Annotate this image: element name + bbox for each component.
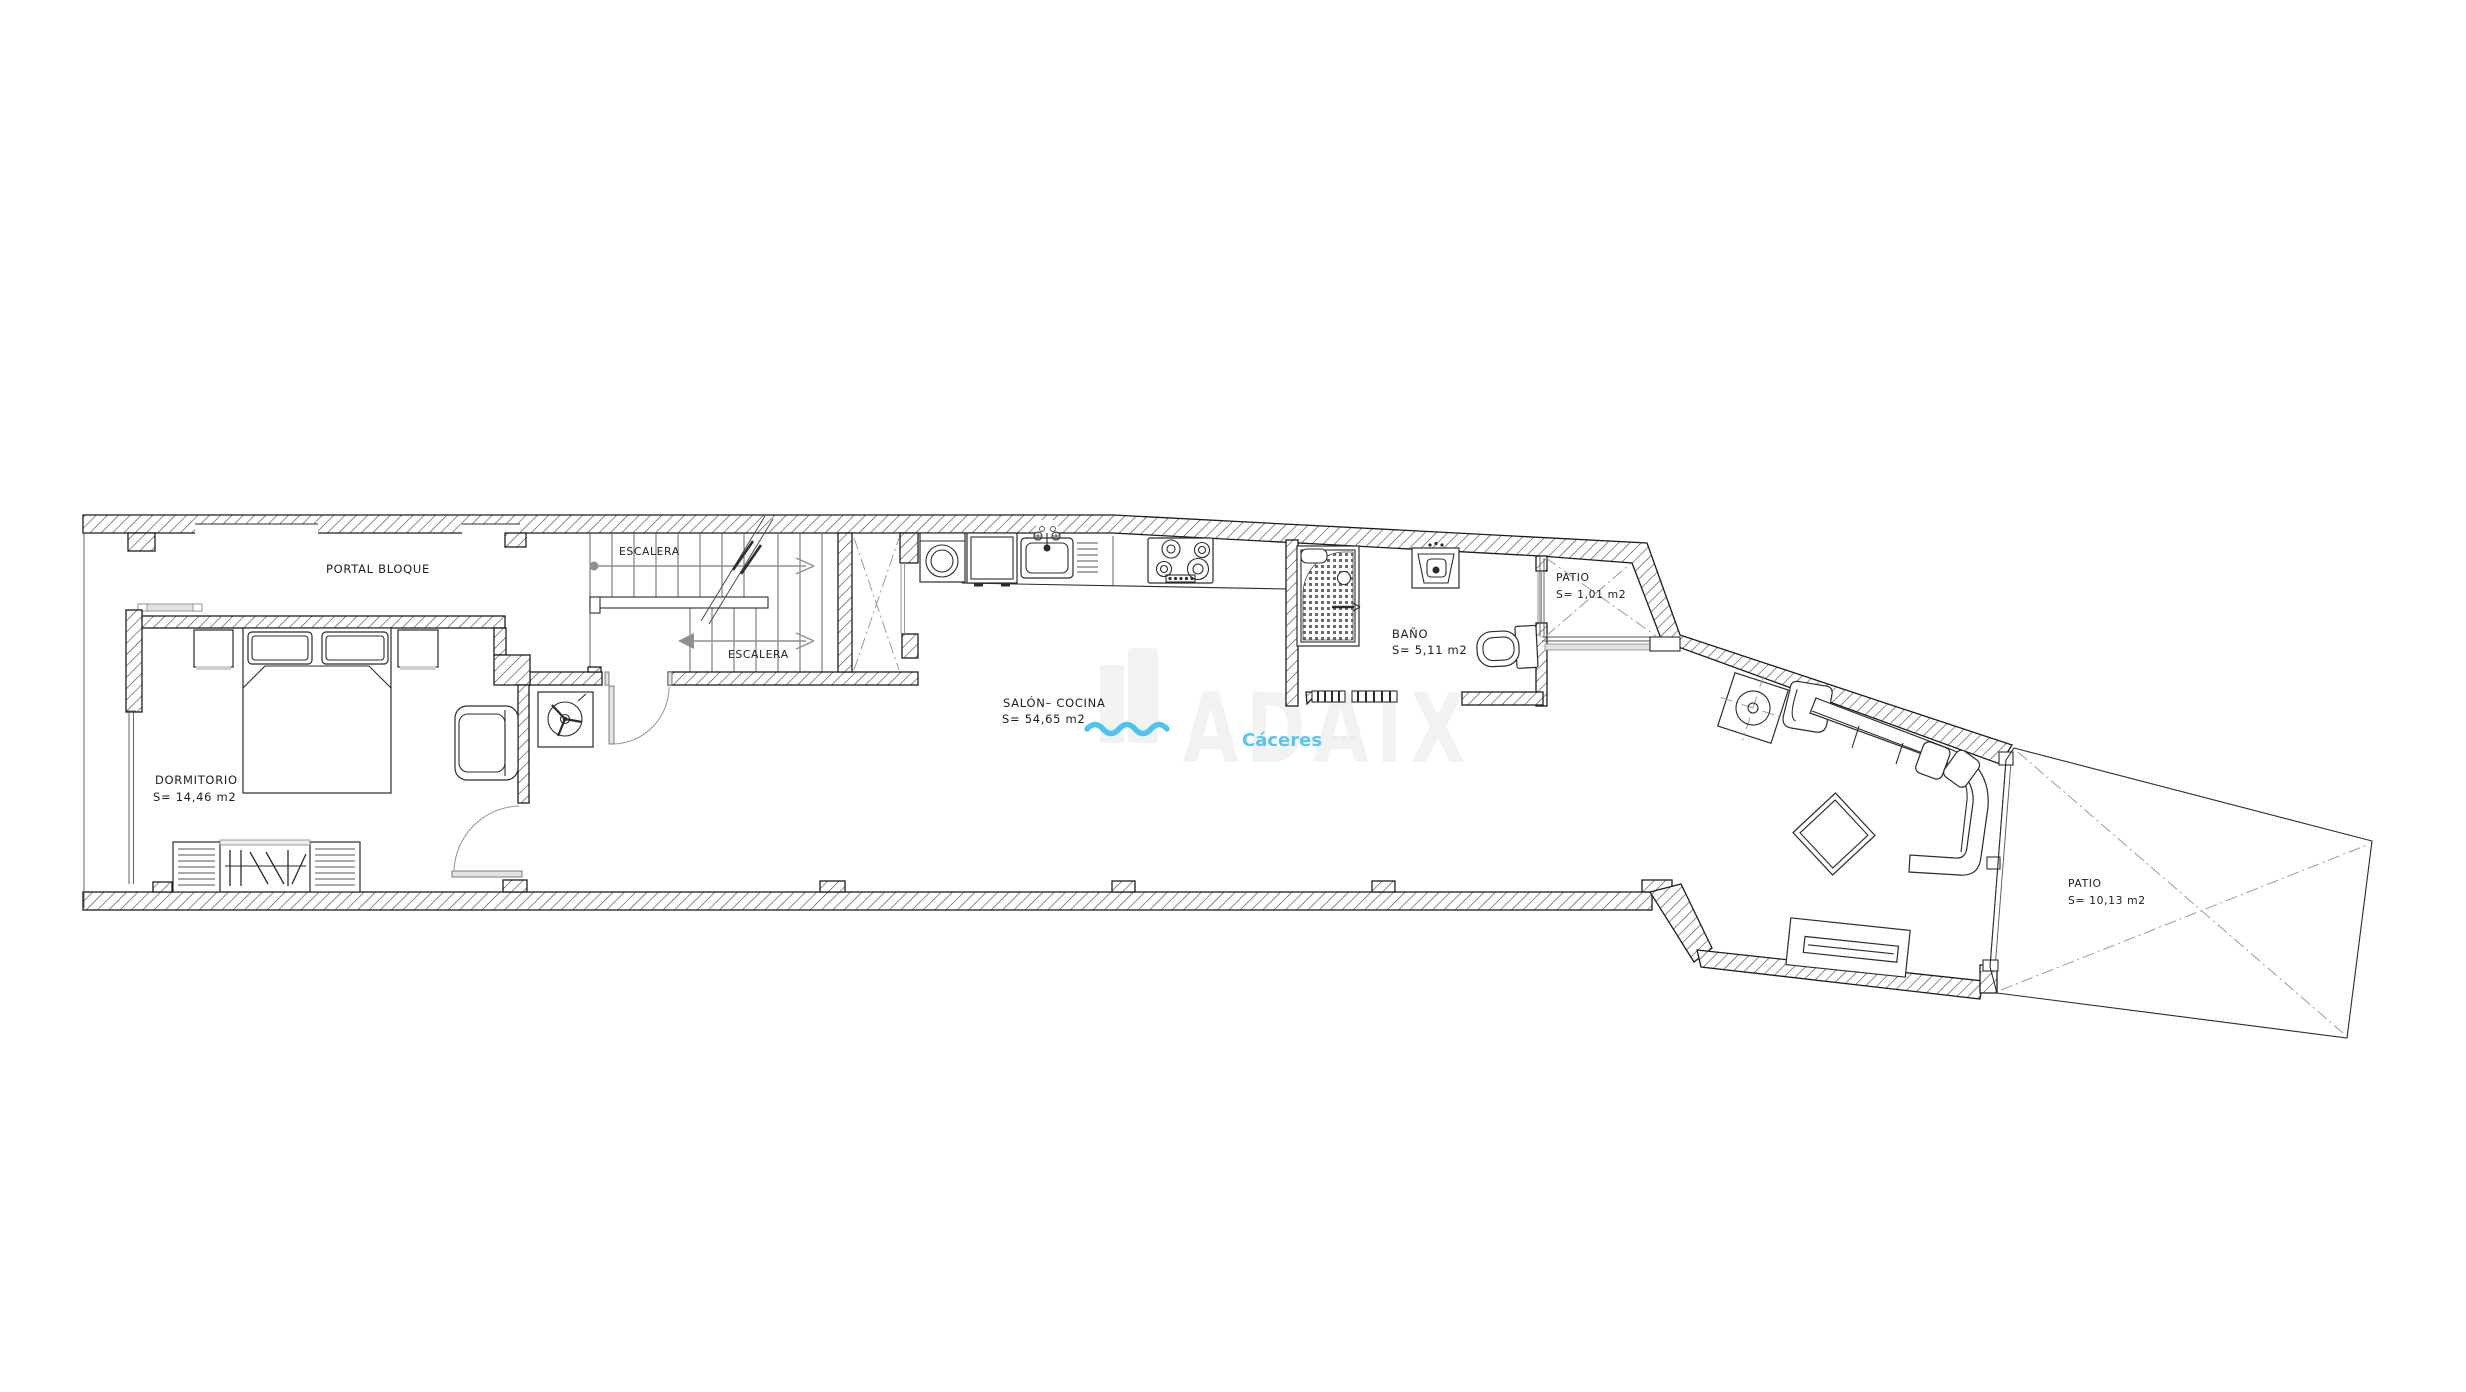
floor-plan-drawing: ADAIX Cáceres — [0, 0, 2466, 1392]
bed — [243, 628, 391, 793]
washing-machine — [920, 533, 965, 582]
shower-shelf — [1301, 549, 1327, 563]
bottom-wall — [83, 892, 1652, 910]
wardrobe-hangers — [225, 850, 306, 886]
dish-drainer — [1077, 543, 1098, 572]
shaft-wall-right-bottom — [902, 634, 918, 658]
pillow-left — [248, 632, 312, 664]
entrance-door — [605, 672, 672, 744]
patio-large-name-label: PATIO — [2068, 877, 2102, 890]
shaft-wall-left — [838, 533, 852, 672]
bedroom-armchair — [455, 706, 518, 780]
stair-arrow-up — [590, 558, 815, 574]
patio-large-area-label: S= 10,13 m2 — [2068, 894, 2146, 907]
pillow-right — [322, 632, 388, 664]
stair-landing-rail — [590, 597, 768, 608]
bedroom-door — [452, 806, 522, 877]
bedroom-partition — [518, 685, 529, 803]
watermark-city-text: Cáceres — [1242, 730, 1322, 751]
stair-wall-right — [668, 672, 918, 685]
bedroom-door-leaf — [452, 871, 522, 877]
shower-drain — [1338, 572, 1351, 585]
bedroom-door-swing — [454, 806, 519, 871]
bathroom-radiator — [1306, 691, 1397, 704]
floor-plan-canvas: ADAIX Cáceres — [0, 0, 2466, 1392]
shower — [1297, 546, 1360, 646]
salon-cocina: SALÓN– COCINA S= 54,65 m2 — [1002, 695, 1106, 726]
counter-edge — [962, 583, 1288, 589]
nightstand-right — [398, 630, 438, 667]
kitchen-sink — [1021, 532, 1073, 578]
portal-bloque: PORTAL BLOQUE — [138, 562, 430, 611]
bedroom-wall-pier — [494, 655, 530, 685]
stair-treads-lower — [690, 608, 756, 672]
portal-label: PORTAL BLOQUE — [326, 562, 430, 576]
patio-small-area-label: S= 1,01 m2 — [1556, 588, 1626, 601]
bedroom: DORMITORIO S= 14,46 m2 — [126, 610, 530, 892]
stair-treads-upper — [612, 533, 744, 597]
kitchen — [920, 532, 1288, 589]
bathroom-sink — [1412, 542, 1459, 588]
coffee-table — [1793, 793, 1875, 875]
stair-wall-left — [523, 672, 602, 685]
bathroom-wall-left — [1286, 540, 1298, 706]
dishwasher — [967, 533, 1017, 587]
stairs-lower-label: ESCALERA — [728, 648, 789, 661]
fan-unit — [538, 692, 593, 747]
salon-area-label: S= 54,65 m2 — [1002, 712, 1085, 726]
bedroom-top-wall — [133, 616, 505, 628]
watermark-brand-text: ADAIX — [1183, 673, 1473, 785]
shaft-wall-right-top — [900, 533, 918, 563]
bedroom-window — [127, 711, 136, 884]
salon-name-label: SALÓN– COCINA — [1003, 695, 1106, 710]
patio-small-name-label: PATIO — [1556, 571, 1590, 584]
nightstand-left — [194, 630, 233, 667]
portal-window-sill — [138, 604, 202, 611]
vent-shaft — [838, 533, 918, 672]
staircase: ESCALERA ESCALERA — [523, 516, 918, 685]
bedroom-area-label: S= 14,46 m2 — [153, 790, 236, 804]
watermark-dots — [1332, 736, 1355, 741]
bottom-wall-piers — [153, 880, 1672, 892]
toilet — [1476, 625, 1538, 670]
stair-arrow-down — [678, 633, 814, 649]
entrance-door-leaf — [609, 686, 614, 744]
bedroom-window-pier — [126, 610, 142, 712]
bathroom-area-label: S= 5,11 m2 — [1392, 643, 1467, 657]
entrance-door-swing — [614, 687, 669, 744]
stove — [1148, 538, 1213, 583]
patio-small-sill — [1545, 644, 1650, 650]
top-wall-pier-left — [128, 533, 155, 551]
bedroom-name-label: DORMITORIO — [155, 773, 238, 787]
stairs-upper-label: ESCALERA — [619, 545, 680, 558]
wardrobe — [173, 840, 360, 892]
adaix-watermark: ADAIX Cáceres — [1087, 648, 1473, 785]
patio-large: PATIO S= 10,13 m2 — [1990, 748, 2372, 1038]
wardrobe-shelf — [220, 840, 310, 845]
bathroom-name-label: BAÑO — [1392, 626, 1428, 641]
top-wall-pier-portal — [505, 533, 526, 547]
bathroom-wall-bottom — [1462, 692, 1543, 705]
patio-small-step — [1650, 637, 1680, 651]
